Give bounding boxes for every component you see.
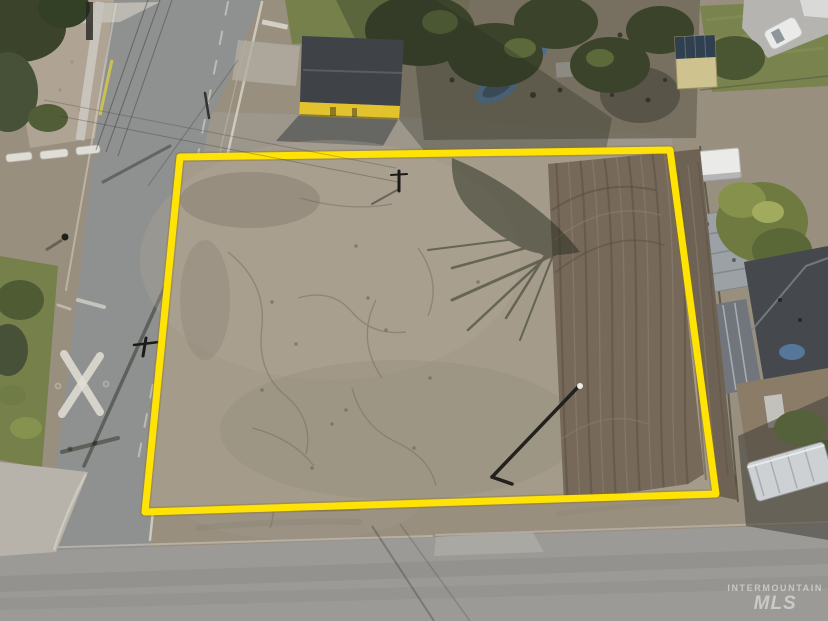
watermark-line2: MLS [727, 594, 823, 613]
container-shed [675, 35, 718, 89]
lot-dirt-patch [180, 172, 320, 228]
watermark: INTERMOUNTAIN MLS [727, 584, 823, 613]
lot-dark-area [220, 360, 580, 500]
watermark-line1: INTERMOUNTAIN [727, 584, 823, 593]
building-parking-pad [232, 40, 300, 86]
roof-tarp-blue [779, 344, 805, 360]
aerial-photo-canvas [0, 0, 828, 621]
pipe-cap [577, 383, 583, 389]
house-topright [800, 0, 828, 18]
aerial-photo: INTERMOUNTAIN MLS [0, 0, 828, 621]
tree-trunk [86, 2, 93, 40]
